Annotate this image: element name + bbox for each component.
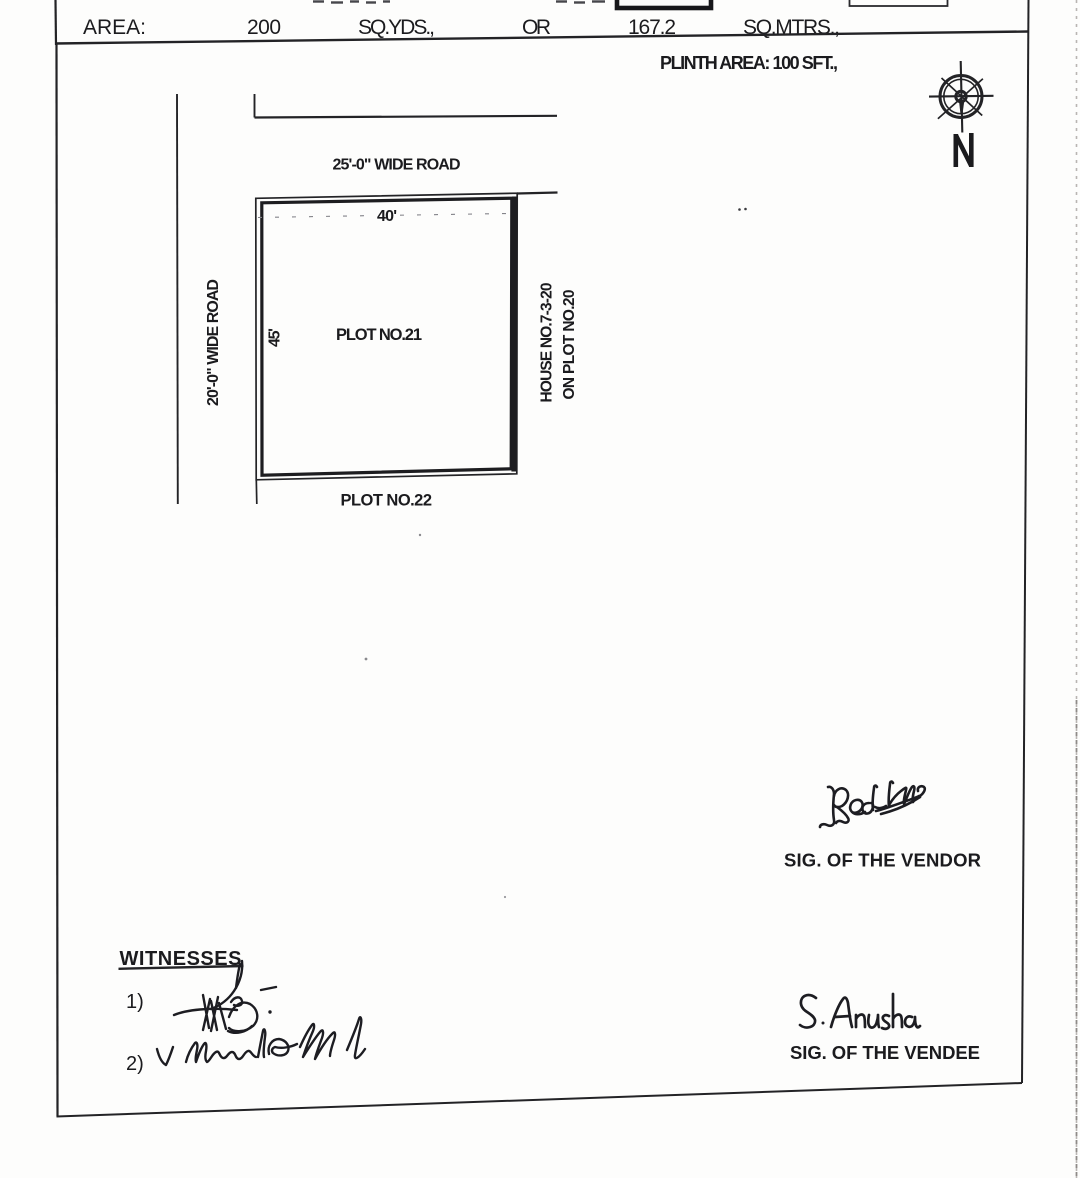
svg-text:SQ.YDS.,: SQ.YDS., [358,16,435,39]
svg-text:OR: OR [522,16,551,39]
svg-text:HOUSE NO.7-3-20: HOUSE NO.7-3-20 [539,283,556,403]
svg-text:45': 45' [267,328,284,347]
svg-text:2): 2) [126,1053,144,1075]
svg-text:SIG. OF THE VENDEE: SIG. OF THE VENDEE [790,1042,980,1063]
svg-text:SIG. OF THE VENDOR: SIG. OF THE VENDOR [784,850,981,871]
svg-text:20'-0" WIDE ROAD: 20'-0" WIDE ROAD [205,279,222,406]
svg-text:ON PLOT NO.20: ON PLOT NO.20 [561,290,578,400]
svg-text:PLOT NO.21: PLOT NO.21 [336,326,422,344]
svg-text:PLINTH AREA: 100 SFT.,: PLINTH AREA: 100 SFT., [660,53,838,73]
svg-text:40': 40' [377,208,397,225]
svg-text:200: 200 [247,16,281,39]
svg-text:1): 1) [126,991,144,1013]
svg-text:25'-0" WIDE ROAD: 25'-0" WIDE ROAD [333,157,461,174]
svg-text:PLOT NO.22: PLOT NO.22 [341,492,433,510]
svg-text:AREA:: AREA: [83,16,146,39]
